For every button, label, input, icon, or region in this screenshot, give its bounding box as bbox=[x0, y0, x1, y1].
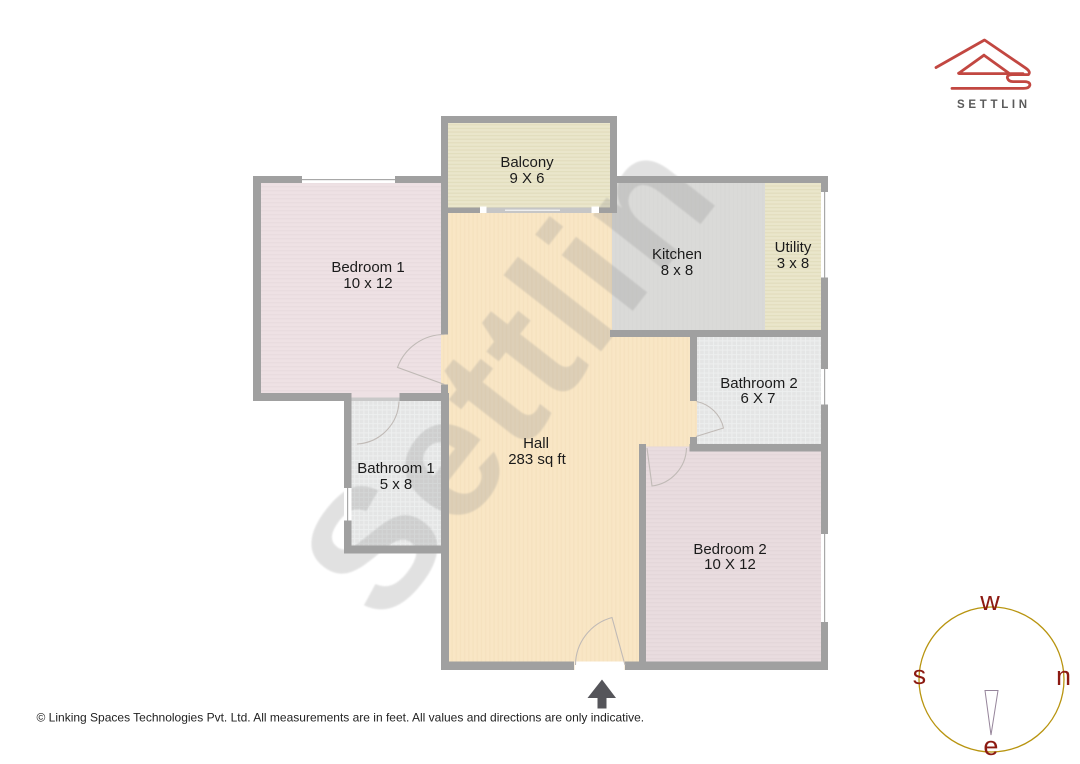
svg-text:w: w bbox=[979, 586, 1000, 616]
svg-text:Bedroom 1: Bedroom 1 bbox=[331, 259, 404, 276]
svg-text:9 X 6: 9 X 6 bbox=[509, 170, 544, 187]
svg-text:Hall: Hall bbox=[523, 435, 549, 452]
svg-text:Balcony: Balcony bbox=[500, 154, 554, 171]
svg-text:10 x 12: 10 x 12 bbox=[343, 275, 392, 292]
svg-text:n: n bbox=[1056, 661, 1071, 691]
svg-text:3 x 8: 3 x 8 bbox=[777, 255, 810, 272]
svg-text:© Linking Spaces Technologies: © Linking Spaces Technologies Pvt. Ltd. … bbox=[37, 711, 645, 725]
svg-text:Bathroom 1: Bathroom 1 bbox=[357, 460, 435, 477]
svg-text:e: e bbox=[983, 731, 998, 761]
svg-text:283 sq ft: 283 sq ft bbox=[508, 451, 566, 468]
svg-text:8 x 8: 8 x 8 bbox=[661, 262, 694, 279]
svg-text:Kitchen: Kitchen bbox=[652, 246, 702, 263]
svg-text:Utility: Utility bbox=[775, 239, 812, 256]
svg-text:10 X 12: 10 X 12 bbox=[704, 556, 756, 573]
svg-text:s: s bbox=[913, 660, 927, 690]
svg-text:5 x 8: 5 x 8 bbox=[380, 476, 413, 493]
svg-text:6 X 7: 6 X 7 bbox=[740, 390, 775, 407]
svg-text:SETTLIN: SETTLIN bbox=[957, 99, 1031, 111]
